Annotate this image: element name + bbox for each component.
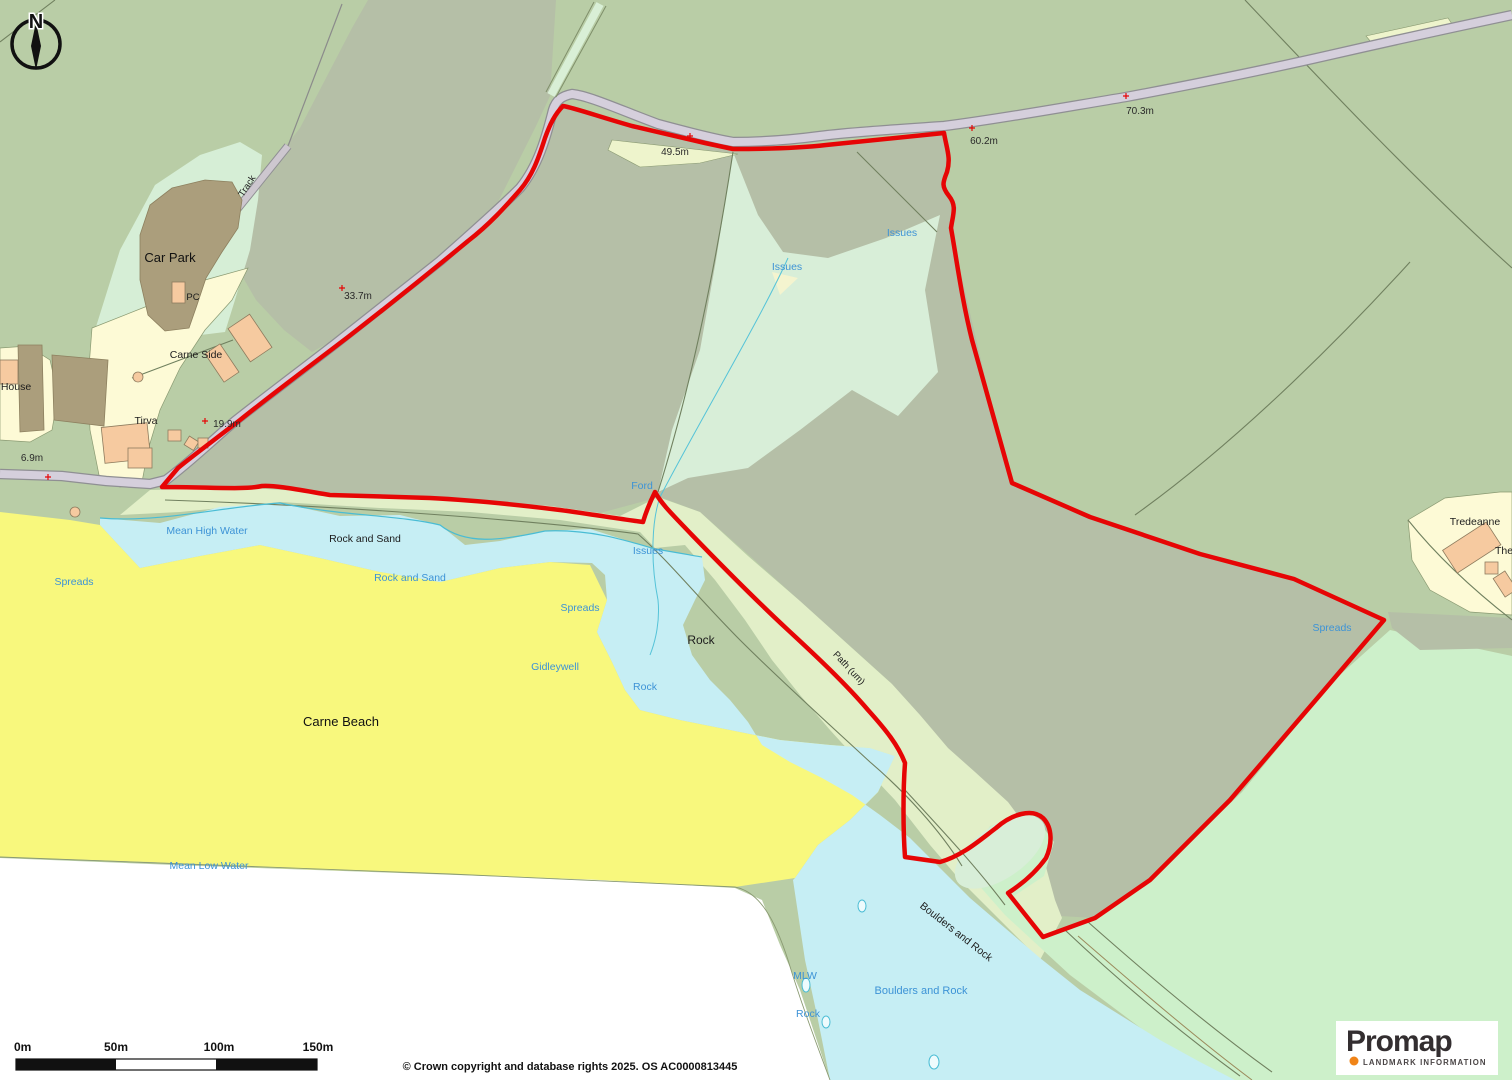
scale-tick-100: 100m bbox=[204, 1040, 235, 1054]
label-spot-height-70: 70.3m bbox=[1126, 106, 1154, 117]
label-tredeanne: Tredeanne bbox=[1450, 516, 1501, 528]
label-carne-side: Carne Side bbox=[170, 349, 223, 361]
scale-tick-0: 0m bbox=[14, 1040, 31, 1054]
label-mean-low-water: Mean Low Water bbox=[170, 860, 249, 872]
label-the: The bbox=[1495, 545, 1512, 557]
promap-site-plan[interactable]: Car Park PC Carne Side Tirva House Track… bbox=[0, 0, 1512, 1080]
building-tirva-annex bbox=[128, 448, 152, 468]
label-rock-blue-mid: Rock bbox=[633, 681, 658, 693]
label-pc: PC bbox=[186, 292, 199, 303]
label-spot-height-19: 19.9m bbox=[213, 419, 241, 430]
tank-1 bbox=[133, 372, 143, 382]
label-car-park: Car Park bbox=[144, 250, 196, 265]
tank-2 bbox=[70, 507, 80, 517]
label-tirva: Tirva bbox=[135, 415, 158, 427]
label-carne-beach: Carne Beach bbox=[303, 714, 379, 729]
label-gidleywell: Gidleywell bbox=[531, 661, 579, 673]
promap-logo: Promap LANDMARK INFORMATION bbox=[1336, 1021, 1498, 1075]
label-spot-height-33: 33.7m bbox=[344, 291, 372, 302]
scale-tick-50: 50m bbox=[104, 1040, 128, 1054]
copyright-attribution: © Crown copyright and database rights 20… bbox=[403, 1061, 738, 1073]
label-spreads-east: Spreads bbox=[1312, 622, 1351, 634]
building-pc bbox=[172, 282, 185, 303]
label-ford: Ford bbox=[631, 480, 653, 492]
house-yard-2 bbox=[52, 355, 108, 426]
label-rock-and-sand-blue: Rock and Sand bbox=[374, 572, 446, 584]
logo-wordmark: Promap bbox=[1346, 1025, 1452, 1058]
label-spreads-mid: Spreads bbox=[560, 602, 599, 614]
logo-tagline: LANDMARK INFORMATION bbox=[1363, 1058, 1487, 1067]
label-spot-height-6: 6.9m bbox=[21, 453, 43, 464]
scale-tick-150: 150m bbox=[303, 1040, 334, 1054]
map-canvas[interactable]: Car Park PC Carne Side Tirva House Track… bbox=[0, 0, 1512, 1080]
label-house: House bbox=[1, 381, 32, 393]
label-spot-height-60: 60.2m bbox=[970, 136, 998, 147]
label-mean-high-water: Mean High Water bbox=[166, 525, 248, 537]
label-issues-left: Issues bbox=[772, 261, 802, 273]
logo-dot-icon bbox=[1350, 1057, 1359, 1066]
label-mlw: MLW bbox=[793, 970, 817, 982]
label-spreads-west: Spreads bbox=[54, 576, 93, 588]
label-rock-blue-south: Rock bbox=[796, 1008, 821, 1020]
label-spot-height-49: 49.5m bbox=[661, 147, 689, 158]
label-boulders-and-rock-blue: Boulders and Rock bbox=[875, 985, 968, 997]
building-outbuilding-1 bbox=[168, 430, 181, 441]
label-rock-black: Rock bbox=[687, 633, 715, 647]
label-rock-and-sand-black: Rock and Sand bbox=[329, 533, 401, 545]
building-tredeanne-2 bbox=[1485, 562, 1498, 574]
label-issues-right: Issues bbox=[887, 227, 917, 239]
label-issues-mid: Issues bbox=[633, 545, 663, 557]
north-letter: N bbox=[29, 11, 43, 33]
